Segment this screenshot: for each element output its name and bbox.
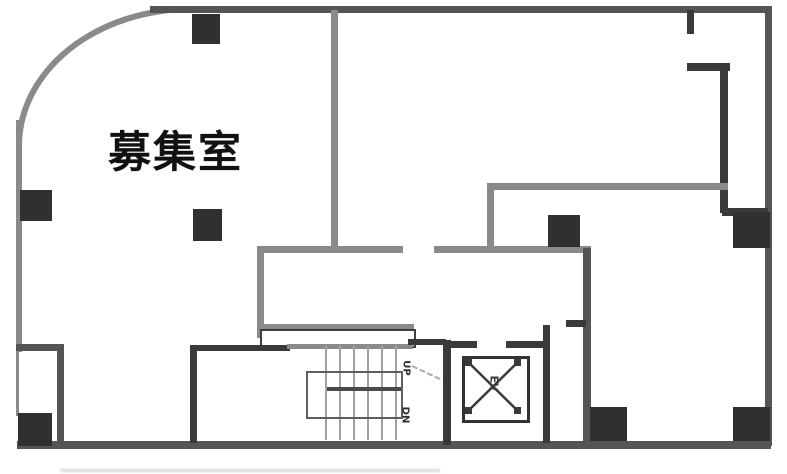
stairs-down-label: DN <box>399 407 409 424</box>
room-label: 募集室 <box>108 132 243 175</box>
wall-duct-stub <box>566 320 586 327</box>
wall-alcove-vertical <box>720 63 728 213</box>
wall-stair-room-left <box>190 345 197 443</box>
wall-vestibule <box>487 183 494 253</box>
wall-stair-ev-divider <box>443 340 451 445</box>
scan-artifact <box>60 469 440 472</box>
wall-corridor-top-left <box>257 246 403 253</box>
outer-wall-bottom <box>17 441 771 449</box>
elevator-shaft: EV <box>462 356 530 423</box>
outer-wall-left-lower <box>16 348 19 416</box>
stair-break-line <box>412 365 441 380</box>
stair-flight-divider <box>327 387 401 391</box>
wall-alcove-stub <box>687 10 694 34</box>
outer-wall-top <box>150 6 771 13</box>
pillar <box>193 209 222 241</box>
wall-ev-hall-top-right <box>506 341 546 348</box>
outer-wall-left <box>16 120 22 352</box>
pillar <box>590 407 627 441</box>
pillar <box>733 407 770 441</box>
wall-upper-room-bottom <box>488 183 728 190</box>
pillar <box>548 215 580 247</box>
pillar <box>733 212 770 248</box>
wall-left-jog-vertical <box>57 344 64 446</box>
wall-stair-room-top <box>190 345 290 351</box>
stair-landing-outline <box>306 371 403 419</box>
floor-plan: UP DN EV 募集室 <box>0 0 787 474</box>
wall-main-divider <box>331 10 338 253</box>
wall-corridor-top-right <box>434 246 591 253</box>
pillar <box>18 413 52 446</box>
stairs-up-label: UP <box>401 360 411 375</box>
wall-stair-top-right <box>408 339 446 345</box>
wall-ev-hall-top-left <box>449 341 477 348</box>
elevator-label: EV <box>489 375 500 391</box>
pillar <box>20 190 52 221</box>
pillar <box>192 14 220 44</box>
